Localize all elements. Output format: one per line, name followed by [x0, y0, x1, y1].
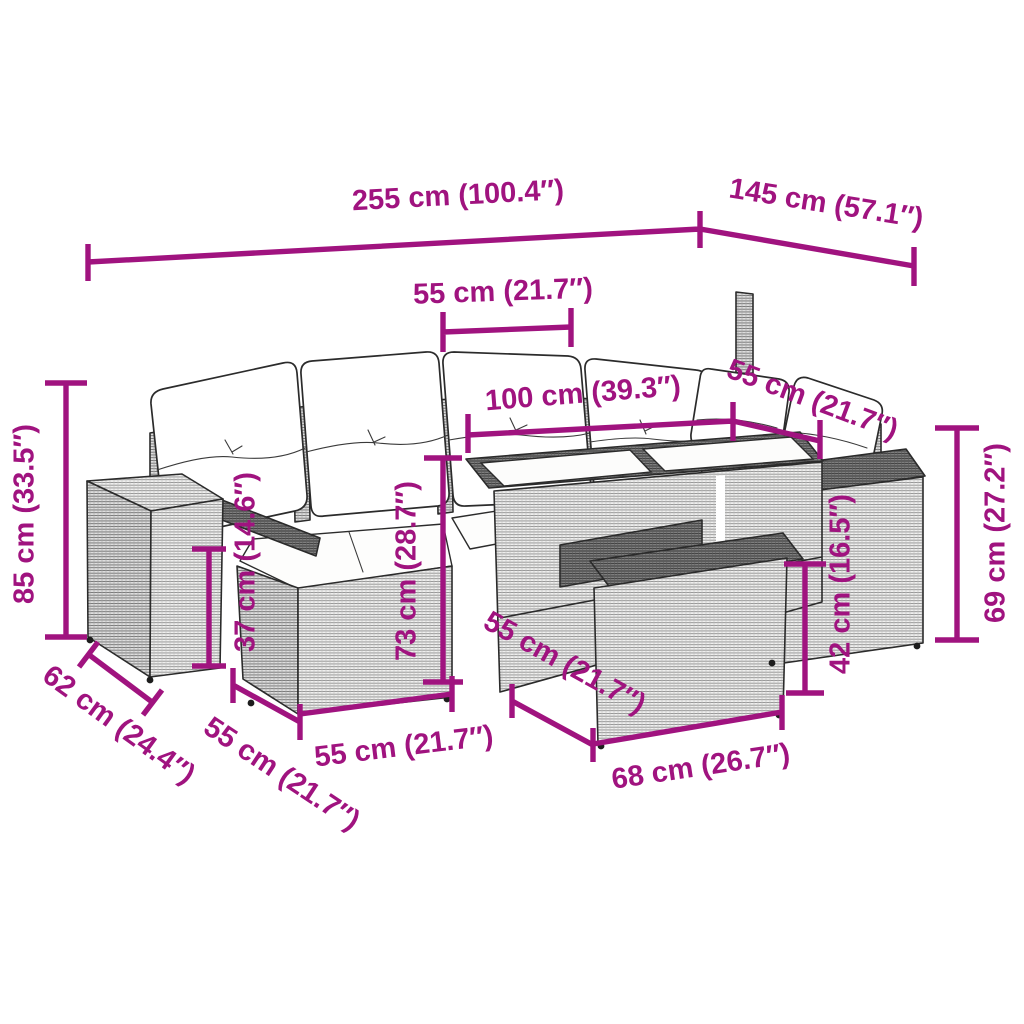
dim-label-seat-top-width: 55 cm (21.7″) — [412, 273, 593, 311]
dim-label-left-height: 85 cm (33.5″) — [9, 424, 41, 604]
dim-seat-top-width: 55 cm (21.7″) — [412, 273, 593, 352]
dim-total-width: 255 cm (100.4″) — [88, 174, 700, 281]
dim-label-footstool-height: 42 cm (16.5″) — [825, 494, 857, 674]
dimension-line — [700, 229, 914, 286]
dimension-line — [88, 211, 700, 281]
dim-label-total-width: 255 cm (100.4″) — [351, 174, 565, 217]
dim-label-seat-height: 37 cm (14.6″) — [230, 472, 262, 652]
dim-label-left-seat-depth: 55 cm (21.7″) — [198, 711, 366, 837]
dim-total-depth: 145 cm (57.1″) — [700, 173, 926, 286]
dimension-line — [45, 383, 87, 637]
dimension-line — [443, 308, 571, 352]
dim-label-total-depth: 145 cm (57.1″) — [727, 173, 926, 235]
dimension-line — [935, 428, 979, 640]
dim-right-height: 69 cm (27.2″) — [935, 428, 1012, 640]
dimension-line — [512, 684, 593, 762]
dim-label-right-height: 69 cm (27.2″) — [980, 443, 1012, 623]
dim-label-mid-height: 73 cm (28.7″) — [391, 481, 423, 661]
product-dimension-diagram: 255 cm (100.4″) 145 cm (57.1″) 55 cm (21… — [0, 0, 1024, 1024]
back-cushion — [301, 352, 449, 516]
left-armrest — [87, 474, 223, 677]
dim-label-seat-front-width: 55 cm (21.7″) — [313, 720, 495, 774]
sofa-set-illustration — [87, 292, 925, 749]
dim-label-footstool-width: 68 cm (26.7″) — [609, 738, 792, 796]
dim-left-height: 85 cm (33.5″) — [9, 383, 87, 637]
